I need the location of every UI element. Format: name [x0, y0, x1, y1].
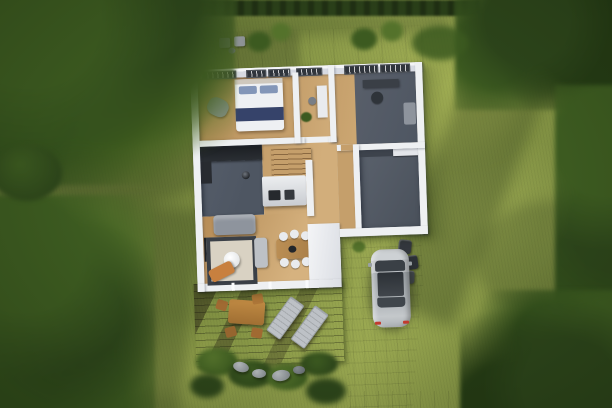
car-mirror [368, 263, 372, 267]
bottom-left-tree [0, 195, 155, 408]
garage-shelf [359, 149, 393, 157]
sofa [213, 214, 256, 235]
island-oven [268, 190, 280, 200]
deck-chair [251, 327, 264, 339]
office-cabinet [403, 102, 416, 124]
bed-throw [235, 107, 283, 122]
bed-pillow [239, 86, 257, 95]
car-windshield [375, 260, 405, 272]
garden-shrub [300, 352, 338, 376]
office-desk [363, 79, 399, 88]
bedroom-window [268, 69, 290, 78]
patio-chair [234, 36, 245, 46]
bedroom-window [246, 69, 266, 78]
small-room-window [296, 68, 322, 77]
car-rear-window [377, 297, 405, 308]
island-appliance [284, 190, 294, 200]
bottom-right-tree [460, 290, 612, 408]
bed-pillow [260, 85, 278, 94]
loveseat [254, 238, 268, 268]
branch-overhang [412, 26, 468, 60]
garden-shrub [306, 378, 346, 404]
car-mirror [408, 261, 412, 265]
car-roof-panel [377, 272, 404, 297]
garage-floor [359, 148, 421, 228]
car-taillight [403, 321, 409, 324]
garden-shrub [190, 374, 224, 398]
car-taillight [375, 322, 381, 325]
deck-chair [251, 293, 264, 305]
garage-vanity [393, 148, 418, 156]
office-window [344, 65, 378, 75]
rock [252, 369, 266, 378]
rock [293, 366, 305, 374]
right-edge-tree [555, 85, 612, 315]
office-window [380, 63, 410, 73]
aerial-garden-scene [0, 0, 612, 408]
small-room-desk [317, 85, 328, 117]
